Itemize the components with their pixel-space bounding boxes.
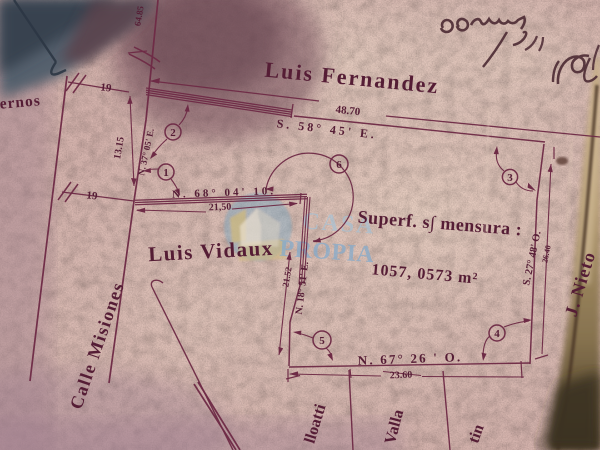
svg-text:5: 5: [319, 335, 325, 347]
svg-text:23.60: 23.60: [390, 370, 413, 382]
svg-text:19: 19: [86, 189, 99, 202]
svg-text:3: 3: [507, 172, 513, 184]
svg-text:2: 2: [170, 127, 176, 139]
svg-text:19: 19: [100, 81, 113, 94]
svg-text:1: 1: [163, 167, 169, 179]
svg-text:ernos: ernos: [0, 92, 41, 113]
svg-text:6: 6: [336, 159, 342, 171]
svg-text:4: 4: [494, 328, 500, 340]
svg-text:21,50: 21,50: [209, 202, 232, 214]
